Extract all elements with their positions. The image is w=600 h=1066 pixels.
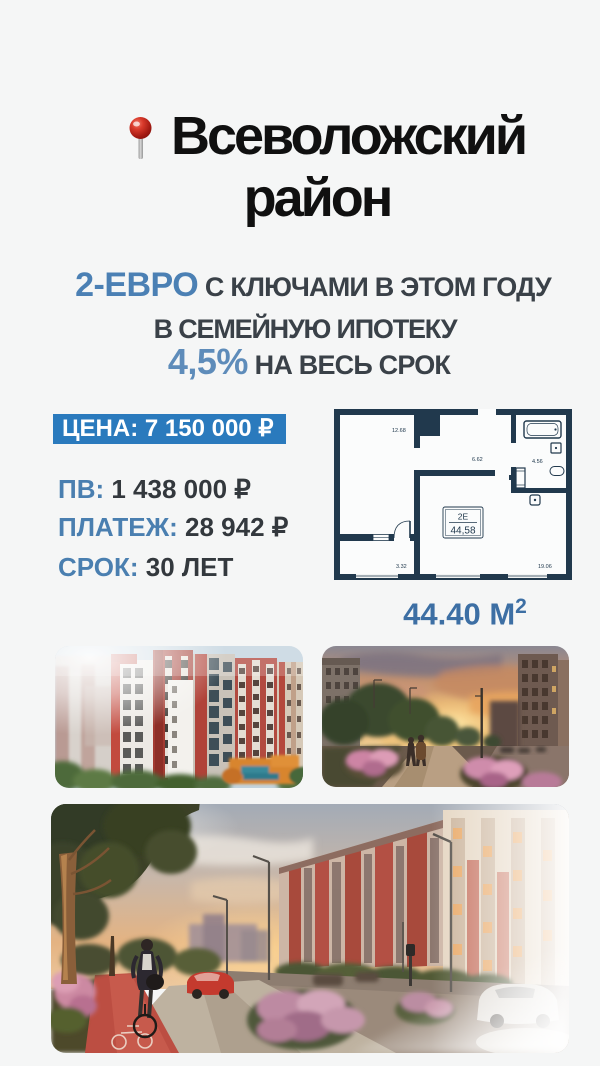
svg-text:19.06: 19.06 <box>538 564 552 570</box>
svg-text:12.68: 12.68 <box>392 428 406 434</box>
svg-text:44,58: 44,58 <box>450 526 475 537</box>
svg-text:4.56: 4.56 <box>532 459 543 465</box>
svg-text:6.62: 6.62 <box>472 457 483 463</box>
svg-text:3.32: 3.32 <box>396 564 407 570</box>
svg-text:2Е: 2Е <box>458 512 469 522</box>
